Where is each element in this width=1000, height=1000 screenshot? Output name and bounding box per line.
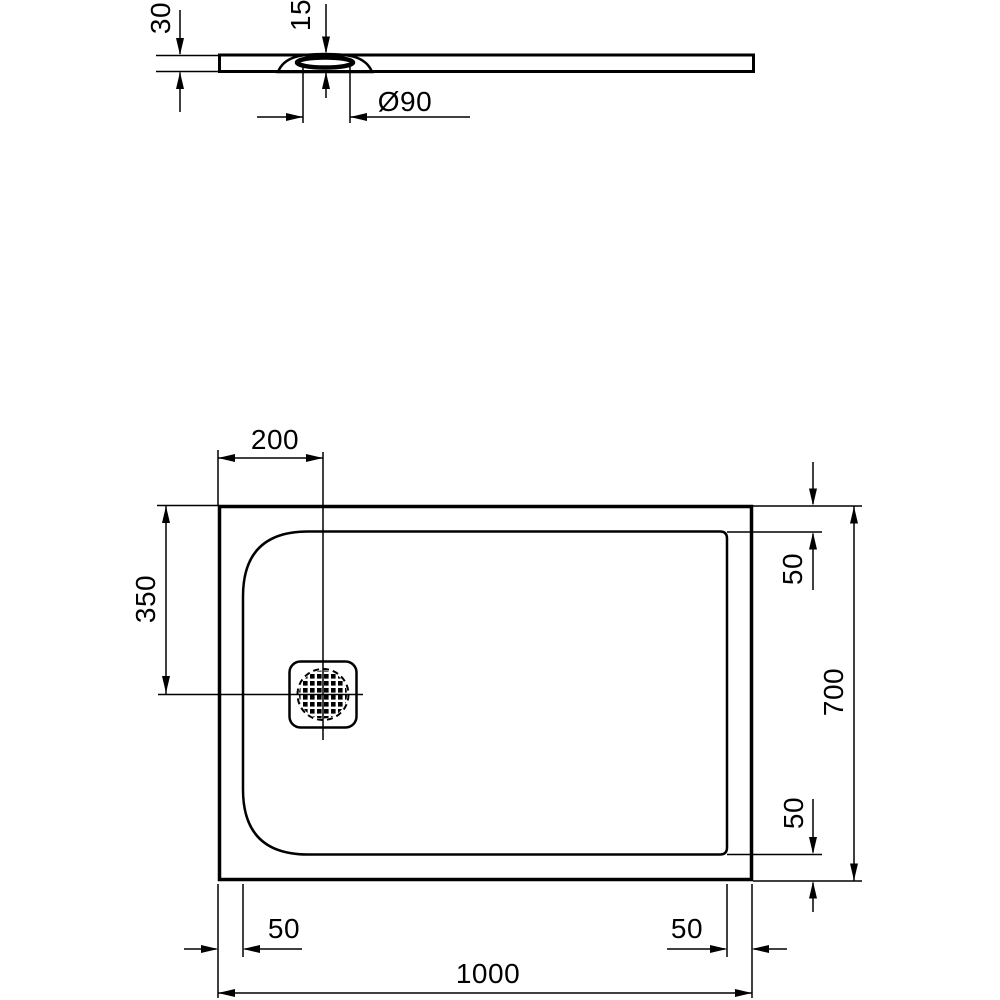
dim-label-drain-offset-x: 200 [251,426,299,454]
technical-drawing-page: 30 15 Ø90 200 350 50 700 50 50 50 1000 [0,0,1000,1000]
profile-view [156,4,755,123]
dim-label-drain-diameter: Ø90 [378,88,432,116]
plan-view [157,450,862,998]
dim-label-rim-top-right: 50 [779,553,807,585]
dim-label-drain-offset-y: 350 [132,575,160,623]
dim-label-rim-bottom-left-edge: 50 [268,915,300,943]
dim-label-overall-length: 1000 [456,960,520,988]
dim-label-profile-height: 30 [147,2,175,34]
dim-label-overall-width: 700 [820,668,848,716]
dim-label-rim-bottom-right: 50 [780,797,808,829]
dim-label-drain-recess-height: 15 [287,0,315,31]
dim-label-rim-bottom-right-edge: 50 [671,915,703,943]
drawing-canvas [0,0,1000,1000]
